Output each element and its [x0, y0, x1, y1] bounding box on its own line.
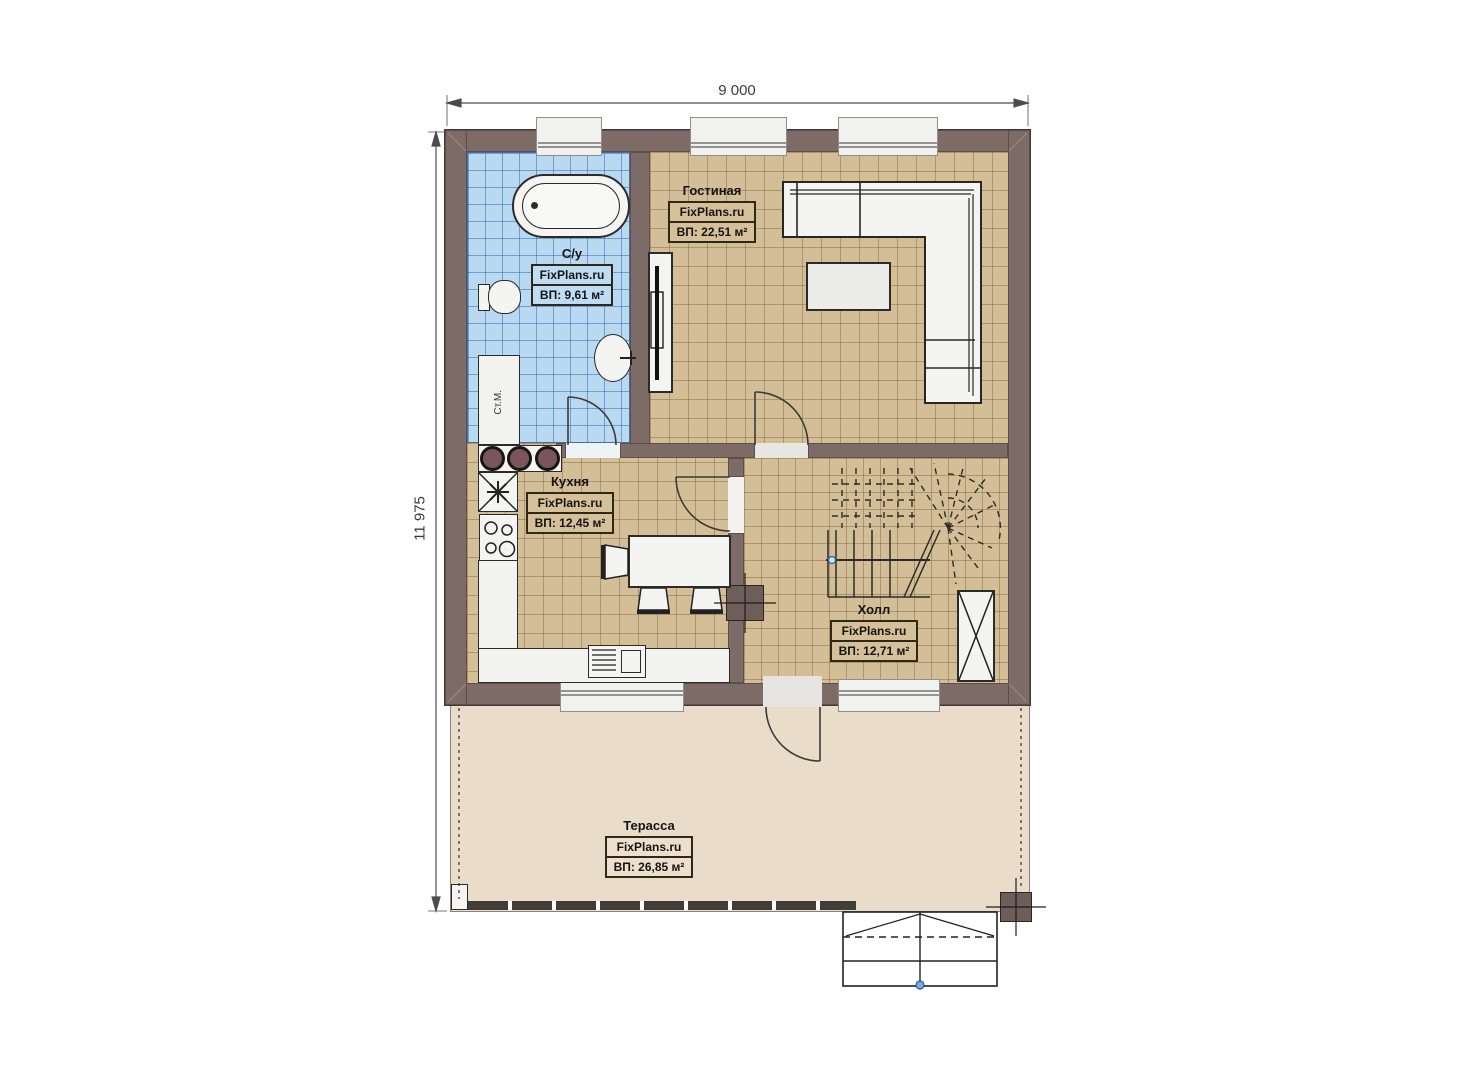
- window-top-1: [536, 117, 602, 156]
- dimension-height: 11 975: [412, 484, 429, 554]
- window-top-2: [690, 117, 787, 156]
- washing-machine-label: Ст.М.: [493, 390, 504, 415]
- room-info-box: FixPlans.ru ВП: 9,61 м²: [531, 264, 614, 306]
- room-name: Холл: [822, 602, 926, 617]
- brand-label: FixPlans.ru: [607, 838, 692, 856]
- area-label: ВП: 9,61 м²: [533, 284, 612, 304]
- hall-label: Холл FixPlans.ru ВП: 12,71 м²: [822, 602, 926, 662]
- coffee-table: [806, 262, 891, 311]
- brand-label: FixPlans.ru: [533, 266, 612, 284]
- floor-plan: Ст.М.: [0, 0, 1473, 1080]
- brand-label: FixPlans.ru: [832, 622, 917, 640]
- bathtub-drain: [531, 202, 538, 209]
- room-info-box: FixPlans.ru ВП: 12,71 м²: [830, 620, 919, 662]
- room-name: Кухня: [518, 474, 622, 489]
- room-name: С/у: [520, 246, 624, 261]
- shaft-box: [957, 590, 995, 682]
- terrace-post-left: [451, 884, 468, 910]
- brand-label: FixPlans.ru: [670, 203, 755, 221]
- window-bottom-hall: [838, 679, 940, 712]
- cooktop-strip: [478, 445, 562, 472]
- washbasin: [594, 334, 632, 382]
- living-room-label: Гостиная FixPlans.ru ВП: 22,51 м²: [660, 183, 764, 243]
- area-label: ВП: 12,45 м²: [528, 512, 613, 532]
- terrace-floor: [450, 705, 1030, 912]
- area-label: ВП: 22,51 м²: [670, 221, 755, 241]
- toilet-bowl: [488, 280, 521, 314]
- tv-unit: [648, 252, 673, 393]
- door-opening-kitchen: [728, 477, 744, 533]
- terrace-edge-board: [468, 901, 856, 910]
- column-terrace: [1000, 892, 1032, 922]
- dimension-width: 9 000: [702, 82, 772, 99]
- kitchen-sink-cabinet: [478, 472, 518, 512]
- kitchen-table: [628, 535, 731, 588]
- burner-icon: [507, 446, 532, 471]
- window-top-3: [838, 117, 938, 156]
- exterior-steps: [843, 912, 997, 989]
- room-info-box: FixPlans.ru ВП: 22,51 м²: [668, 201, 757, 243]
- burner-icon: [480, 446, 505, 471]
- terrace-label: Терасса FixPlans.ru ВП: 26,85 м²: [597, 818, 701, 878]
- room-name: Терасса: [597, 818, 701, 833]
- room-name: Гостиная: [660, 183, 764, 198]
- room-info-box: FixPlans.ru ВП: 12,45 м²: [526, 492, 615, 534]
- window-bottom-kitchen: [560, 679, 684, 712]
- door-opening-bathroom: [566, 443, 620, 458]
- room-info-box: FixPlans.ru ВП: 26,85 м²: [605, 836, 694, 878]
- burner-icon: [535, 446, 560, 471]
- stove: [479, 514, 518, 562]
- sink-basin: [621, 650, 641, 673]
- washing-machine-counter: Ст.М.: [478, 355, 520, 445]
- door-opening-entrance: [763, 676, 822, 707]
- area-label: ВП: 26,85 м²: [607, 856, 692, 876]
- door-opening-living-hall: [755, 443, 808, 458]
- bathroom-label: С/у FixPlans.ru ВП: 9,61 м²: [520, 246, 624, 306]
- area-label: ВП: 12,71 м²: [832, 640, 917, 660]
- kitchen-label: Кухня FixPlans.ru ВП: 12,45 м²: [518, 474, 622, 534]
- brand-label: FixPlans.ru: [528, 494, 613, 512]
